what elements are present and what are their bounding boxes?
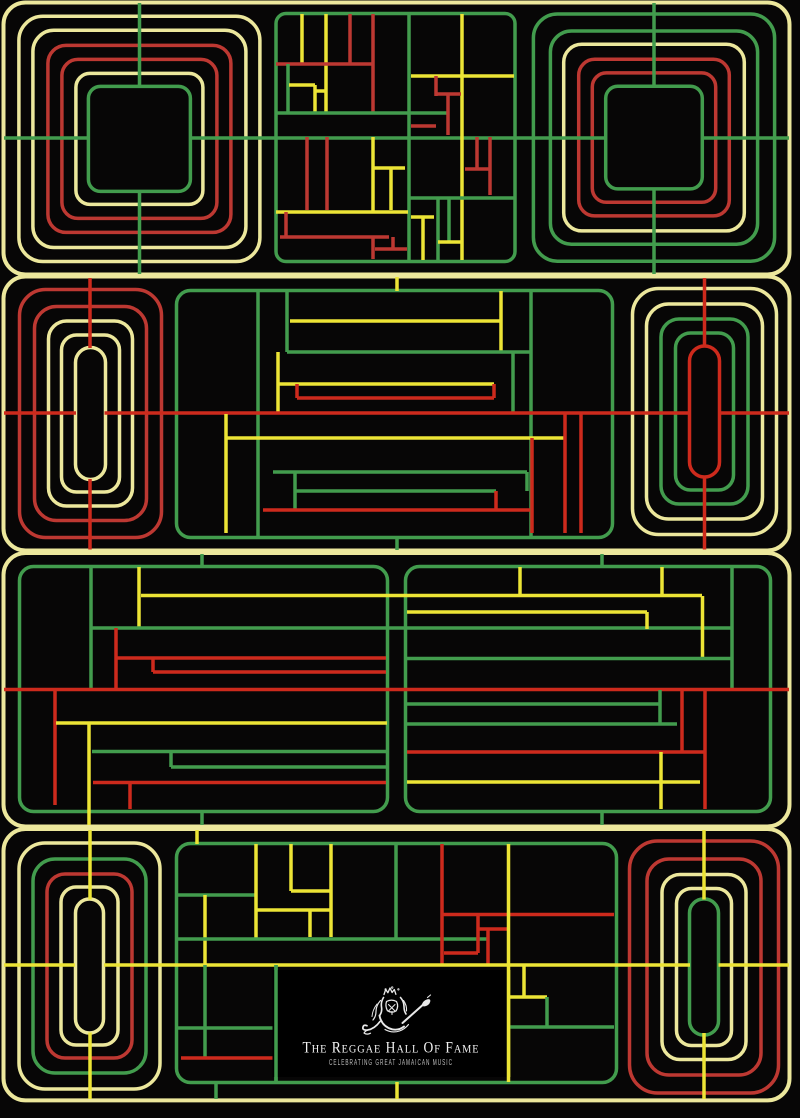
svg-text:CELEBRATING GREAT JAMAICAN MUS: CELEBRATING GREAT JAMAICAN MUSIC — [329, 1058, 453, 1067]
svg-text:THE REGGAE HALL OF FAME: THE REGGAE HALL OF FAME — [303, 1040, 480, 1057]
